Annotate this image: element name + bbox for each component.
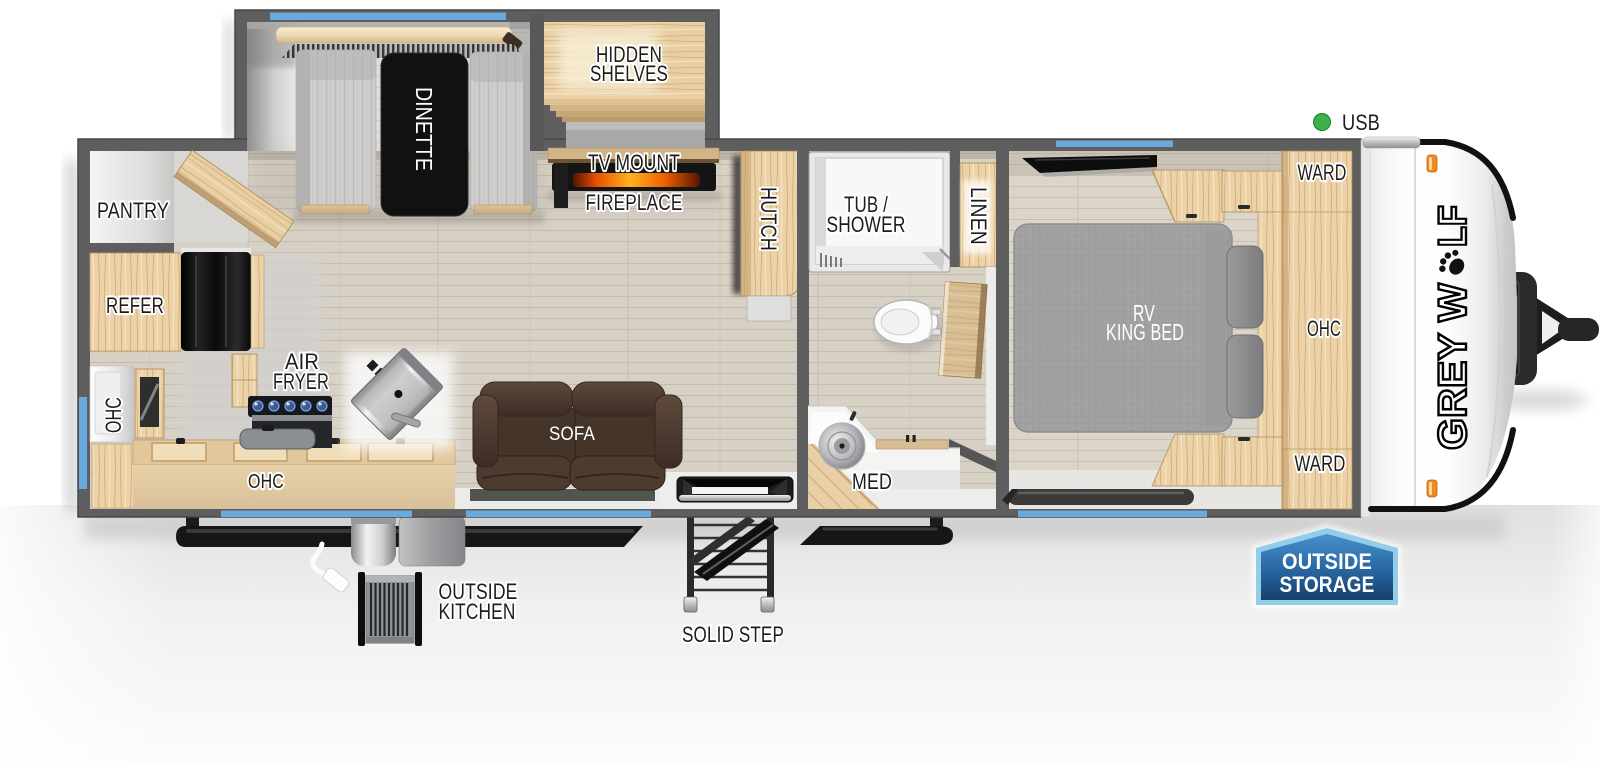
svg-text:HUTCH: HUTCH xyxy=(756,187,781,251)
svg-text:KITCHEN: KITCHEN xyxy=(439,599,516,624)
svg-text:SOFA: SOFA xyxy=(549,424,595,445)
svg-text:REFER: REFER xyxy=(106,293,164,318)
svg-text:KING BED: KING BED xyxy=(1106,319,1184,345)
svg-text:FIREPLACE: FIREPLACE xyxy=(586,190,683,215)
svg-text:SHOWER: SHOWER xyxy=(827,212,906,237)
svg-text:SOLID STEP: SOLID STEP xyxy=(682,622,784,647)
svg-text:GREY W: GREY W xyxy=(1431,283,1475,450)
svg-text:PANTRY: PANTRY xyxy=(97,198,169,223)
svg-text:WARD: WARD xyxy=(1295,451,1346,476)
svg-text:USB: USB xyxy=(1342,110,1380,135)
svg-text:FRYER: FRYER xyxy=(273,369,329,394)
svg-text:LF: LF xyxy=(1431,205,1475,247)
svg-text:OUTSIDE: OUTSIDE xyxy=(1282,549,1372,574)
svg-text:STORAGE: STORAGE xyxy=(1280,572,1375,597)
svg-text:TV MOUNT: TV MOUNT xyxy=(588,150,680,175)
svg-text:OHC: OHC xyxy=(101,397,126,433)
svg-text:DINETTE: DINETTE xyxy=(411,87,437,171)
svg-text:LINEN: LINEN xyxy=(966,187,991,245)
svg-text:OHC: OHC xyxy=(1307,316,1341,341)
svg-text:WARD: WARD xyxy=(1298,160,1347,185)
svg-text:OHC: OHC xyxy=(248,471,284,493)
svg-text:MED: MED xyxy=(852,469,892,494)
svg-text:SHELVES: SHELVES xyxy=(590,61,668,86)
